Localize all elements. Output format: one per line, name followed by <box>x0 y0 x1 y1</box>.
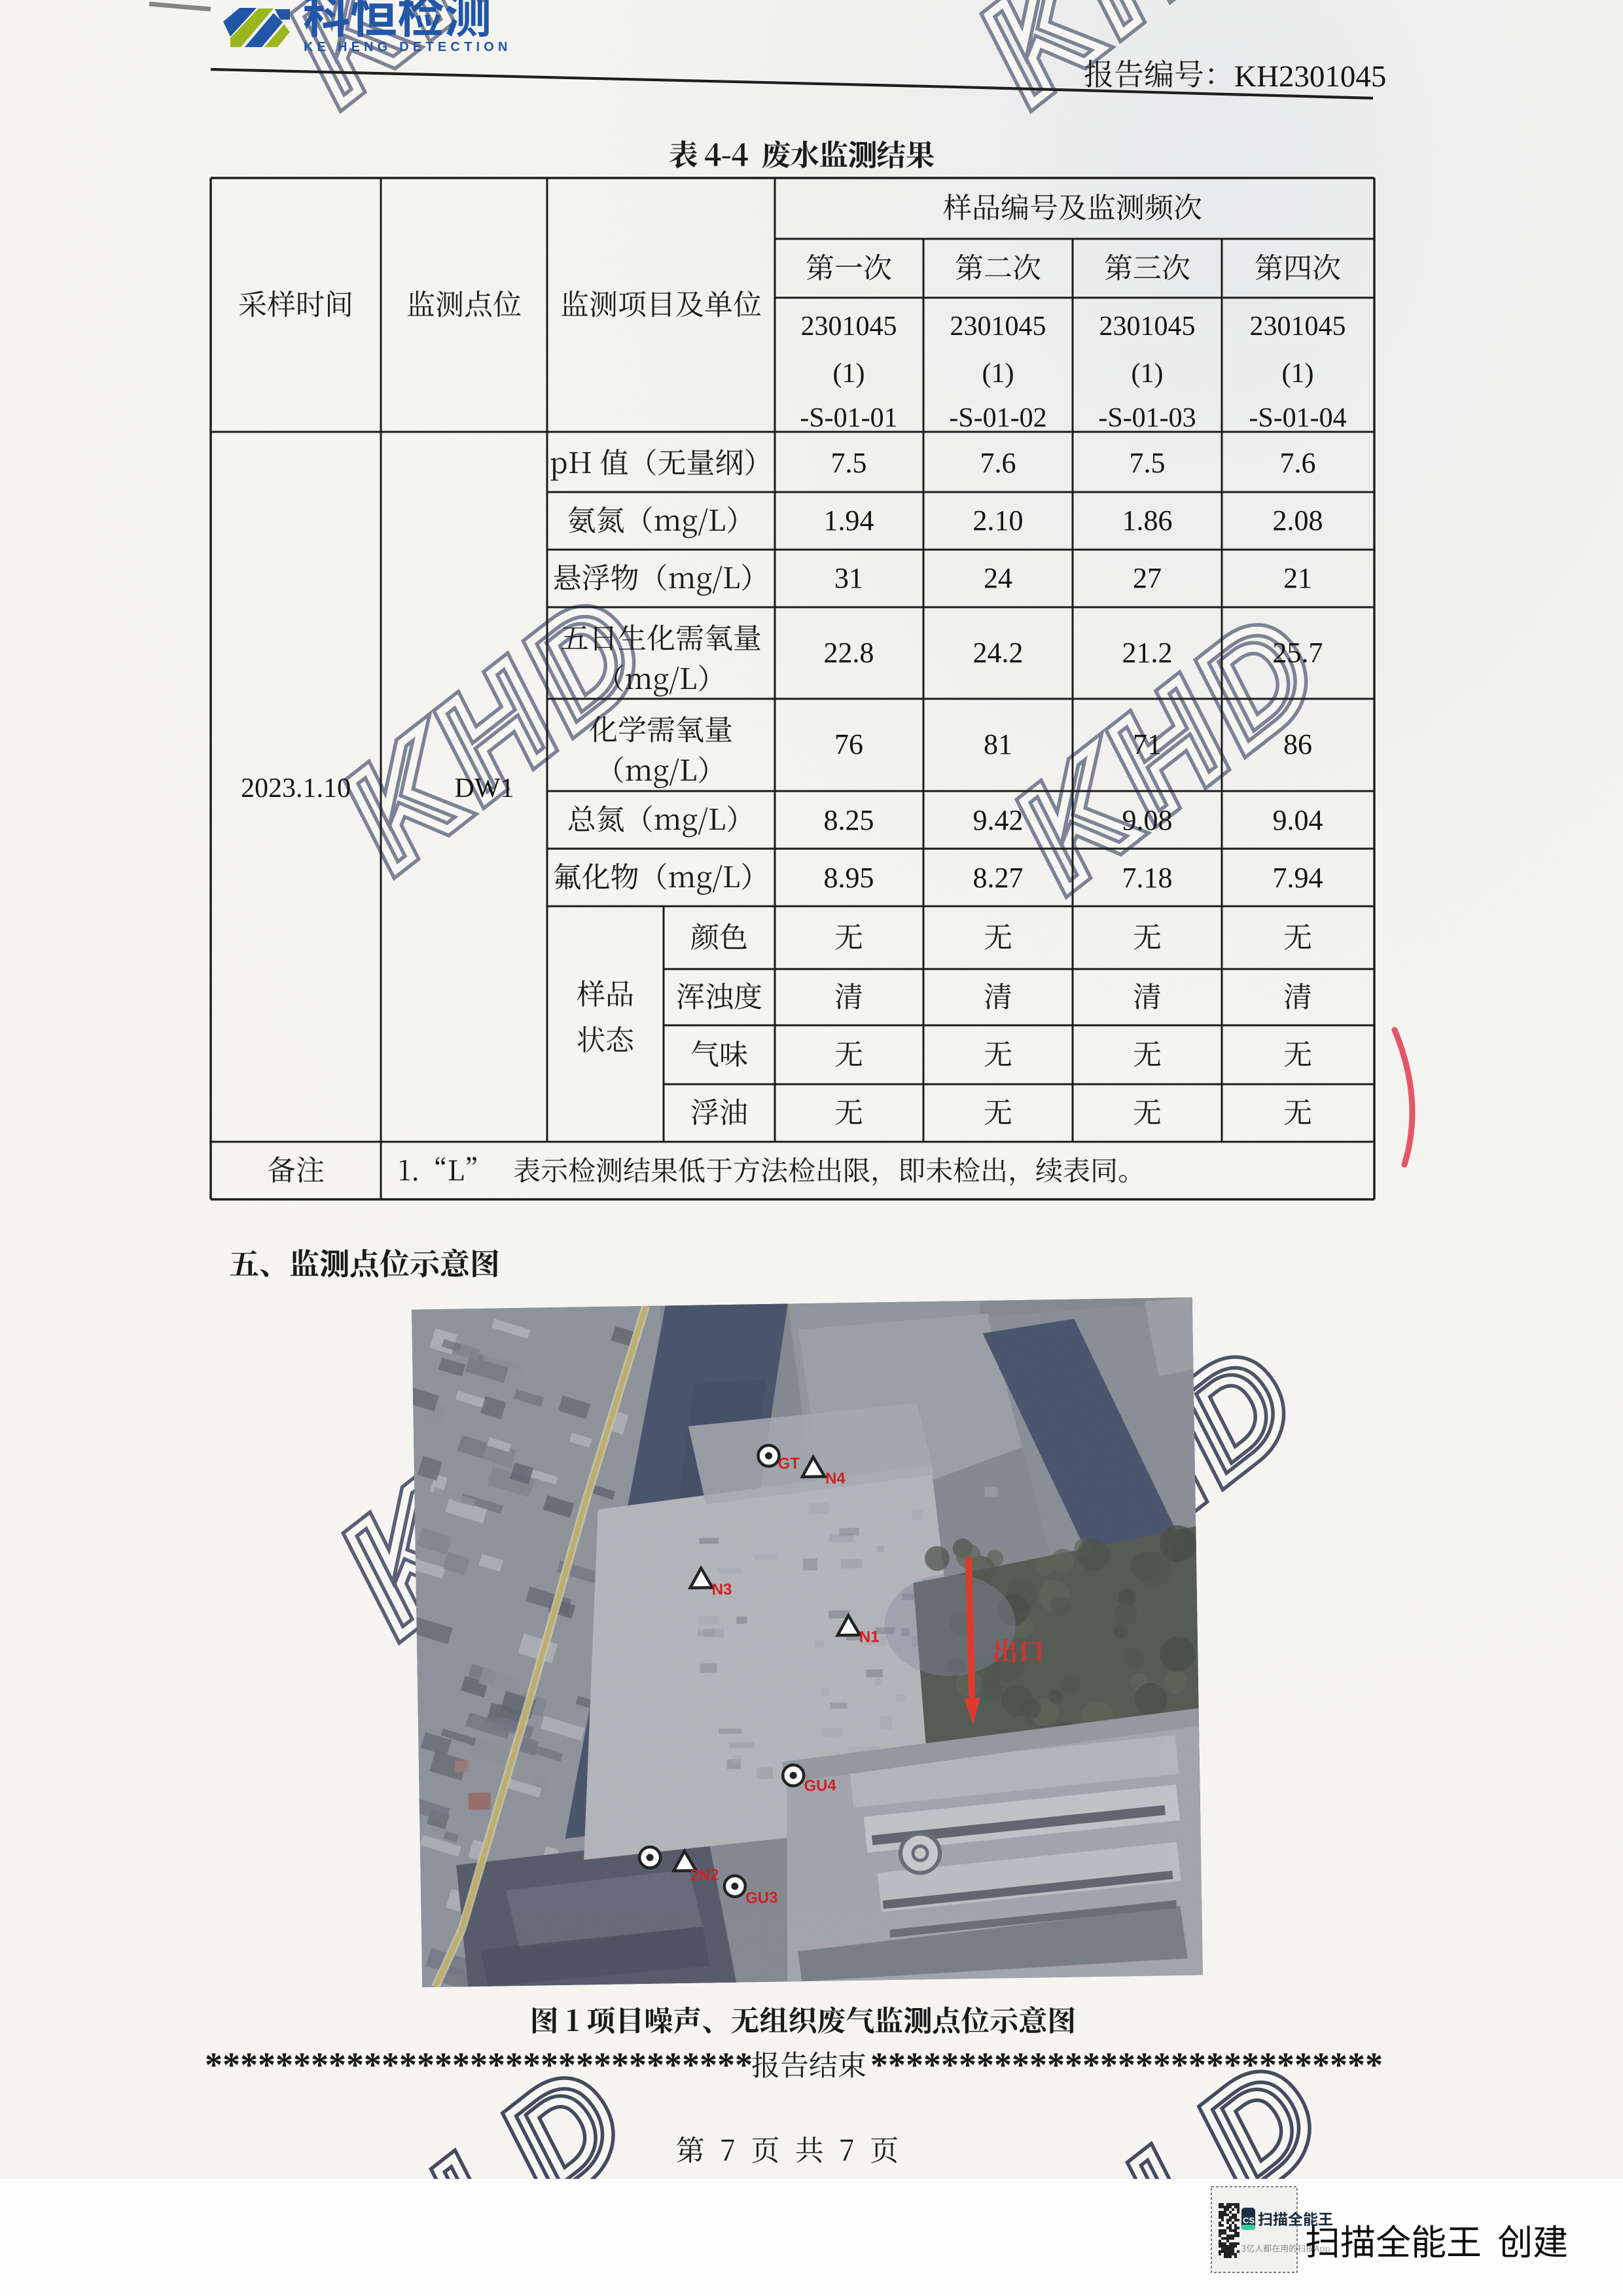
svg-text:2N2: 2N2 <box>690 1866 719 1884</box>
svg-text:7.6: 7.6 <box>1280 447 1316 479</box>
svg-text:2.08: 2.08 <box>1273 504 1323 537</box>
svg-text:2301045: 2301045 <box>1250 311 1346 342</box>
svg-text:76: 76 <box>834 728 863 760</box>
svg-text:7.18: 7.18 <box>1122 862 1173 894</box>
svg-text:8.95: 8.95 <box>824 862 874 894</box>
svg-text:31: 31 <box>834 562 863 594</box>
svg-text:N1: N1 <box>859 1628 880 1646</box>
svg-text:86: 86 <box>1283 728 1312 760</box>
svg-text:2301045: 2301045 <box>801 311 897 342</box>
svg-text:2023.1.10: 2023.1.10 <box>241 773 351 804</box>
svg-text:7.94: 7.94 <box>1273 862 1323 894</box>
svg-text:-S-01-04: -S-01-04 <box>1249 403 1346 433</box>
svg-text:81: 81 <box>984 728 1012 760</box>
svg-text:25.7: 25.7 <box>1273 637 1323 669</box>
svg-text:(1): (1) <box>982 359 1014 389</box>
svg-text:7.5: 7.5 <box>831 447 867 479</box>
svg-text:GT: GT <box>777 1455 800 1473</box>
svg-text:GU4: GU4 <box>804 1776 836 1795</box>
svg-text:-S-01-03: -S-01-03 <box>1098 403 1196 433</box>
svg-text:N4: N4 <box>825 1470 846 1487</box>
svg-text:22.8: 22.8 <box>824 637 874 669</box>
svg-text:******************************: ******************************* <box>205 2045 753 2085</box>
svg-text:9.04: 9.04 <box>1273 804 1323 836</box>
svg-text:-S-01-02: -S-01-02 <box>949 403 1046 433</box>
svg-text:9.42: 9.42 <box>973 804 1024 836</box>
svg-text:2.10: 2.10 <box>973 504 1024 537</box>
svg-text:27: 27 <box>1133 562 1162 594</box>
svg-text:GU3: GU3 <box>745 1889 778 1907</box>
svg-text:2301045: 2301045 <box>1099 311 1196 342</box>
svg-text:CS: CS <box>1243 2216 1255 2225</box>
svg-text:-S-01-01: -S-01-01 <box>800 403 897 433</box>
svg-text:71: 71 <box>1133 728 1162 760</box>
svg-text:7.5: 7.5 <box>1130 447 1166 479</box>
svg-text:24.2: 24.2 <box>973 637 1024 669</box>
svg-text:*****************************: ***************************** <box>870 2045 1383 2085</box>
svg-text:DW1: DW1 <box>455 773 514 804</box>
svg-text:8.25: 8.25 <box>824 804 874 836</box>
svg-text:1.94: 1.94 <box>824 504 874 537</box>
svg-text:2301045: 2301045 <box>950 311 1046 342</box>
svg-text:(1): (1) <box>833 359 865 389</box>
svg-text:7.6: 7.6 <box>980 447 1016 479</box>
svg-text:(1): (1) <box>1132 359 1164 389</box>
svg-text:24: 24 <box>984 562 1012 594</box>
svg-text:21: 21 <box>1283 562 1312 594</box>
svg-text:KH2301045: KH2301045 <box>1234 60 1386 94</box>
svg-text:8.27: 8.27 <box>973 862 1024 894</box>
svg-text:9.08: 9.08 <box>1122 804 1173 836</box>
svg-text:(1): (1) <box>1282 359 1314 389</box>
svg-text:1.86: 1.86 <box>1122 504 1173 537</box>
svg-text:21.2: 21.2 <box>1122 637 1173 669</box>
svg-text:N3: N3 <box>712 1581 732 1598</box>
svg-text:KE HENG DETECTION: KE HENG DETECTION <box>304 40 512 54</box>
